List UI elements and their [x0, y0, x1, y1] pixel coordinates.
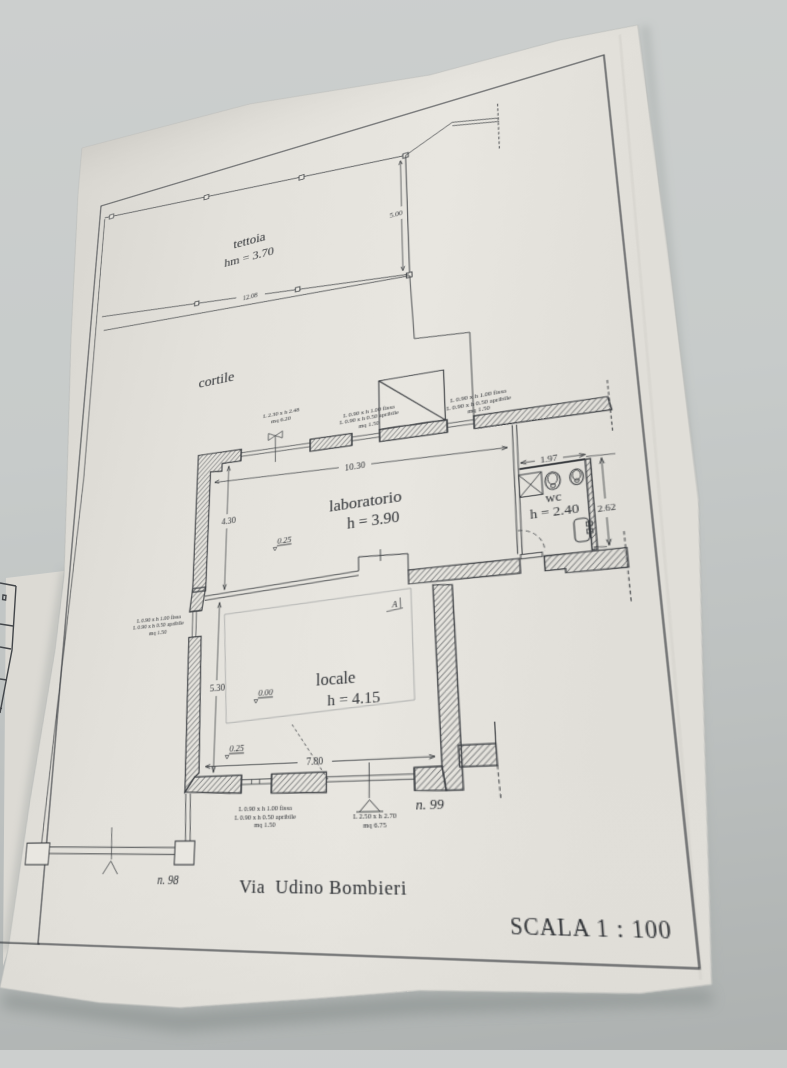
svg-text:7.80: 7.80 [306, 757, 323, 769]
svg-text:SCALA 1 : 100: SCALA 1 : 100 [509, 914, 673, 946]
svg-text:h = 4.15: h = 4.15 [327, 689, 380, 710]
svg-text:0.00: 0.00 [258, 689, 273, 699]
svg-text:n. 98: n. 98 [157, 873, 179, 888]
svg-text:mq 6.75: mq 6.75 [363, 821, 388, 830]
svg-text:L 2.50 x h 2.70: L 2.50 x h 2.70 [353, 812, 398, 822]
svg-text:mq 1.50: mq 1.50 [254, 821, 277, 830]
svg-text:n. 99: n. 99 [415, 797, 444, 813]
svg-text:5.30: 5.30 [210, 683, 225, 695]
svg-text:0.25: 0.25 [229, 745, 244, 755]
svg-text:Via Udino Bombieri: Via Udino Bombieri [239, 876, 407, 901]
svg-text:locale: locale [316, 669, 356, 691]
